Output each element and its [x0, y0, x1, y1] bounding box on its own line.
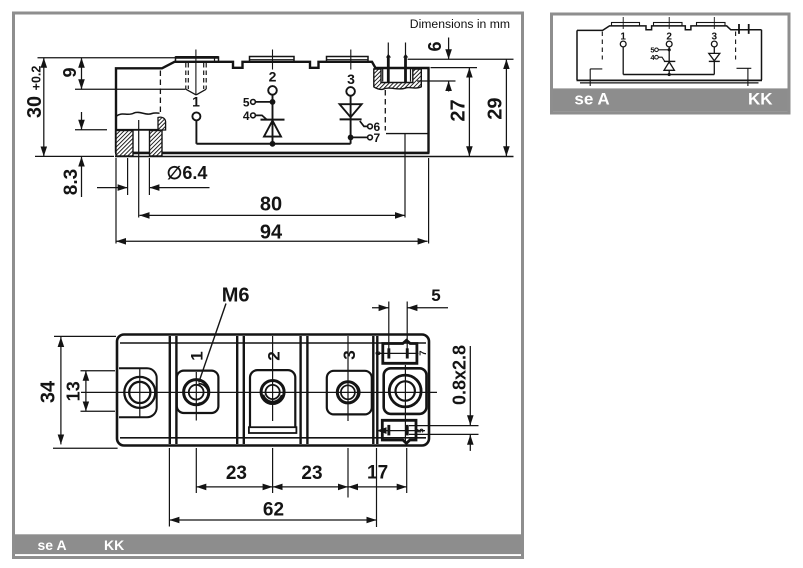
svg-text:29: 29: [485, 97, 507, 119]
svg-text:94: 94: [260, 222, 283, 244]
svg-text:KK: KK: [104, 537, 124, 553]
svg-text:2: 2: [666, 32, 672, 43]
svg-text:17: 17: [367, 463, 388, 484]
svg-text:3: 3: [712, 32, 718, 43]
svg-text:1: 1: [620, 32, 626, 43]
svg-text:0.8x2.8: 0.8x2.8: [450, 345, 470, 405]
svg-text:∅6.4: ∅6.4: [167, 163, 208, 183]
svg-text:80: 80: [260, 194, 282, 216]
svg-text:23: 23: [226, 463, 247, 484]
svg-text:3: 3: [340, 350, 359, 359]
svg-text:2: 2: [269, 69, 277, 85]
svg-text:23: 23: [301, 463, 322, 484]
svg-text:27: 27: [448, 99, 470, 121]
svg-text:KK: KK: [748, 90, 773, 109]
svg-text:34: 34: [38, 380, 60, 403]
svg-text:13: 13: [64, 381, 84, 401]
svg-text:se A: se A: [38, 537, 67, 553]
svg-text:7: 7: [374, 131, 381, 145]
svg-text:Dimensions in mm: Dimensions in mm: [410, 17, 510, 31]
svg-text:62: 62: [263, 500, 284, 521]
svg-text:1: 1: [192, 94, 200, 110]
svg-text:se A: se A: [574, 90, 609, 109]
svg-text:+0.2: +0.2: [30, 66, 44, 91]
svg-text:M6: M6: [222, 285, 250, 307]
svg-text:5: 5: [243, 95, 250, 109]
svg-text:6: 6: [374, 351, 383, 355]
svg-text:5: 5: [431, 286, 440, 305]
svg-text:9: 9: [60, 67, 80, 77]
svg-text:7: 7: [418, 350, 429, 355]
svg-text:2: 2: [265, 351, 284, 360]
svg-text:3: 3: [347, 71, 355, 87]
svg-text:1: 1: [187, 351, 206, 360]
svg-text:30: 30: [24, 96, 46, 118]
svg-text:4: 4: [243, 109, 250, 123]
svg-text:6: 6: [425, 41, 445, 51]
svg-text:8.3: 8.3: [61, 169, 82, 195]
